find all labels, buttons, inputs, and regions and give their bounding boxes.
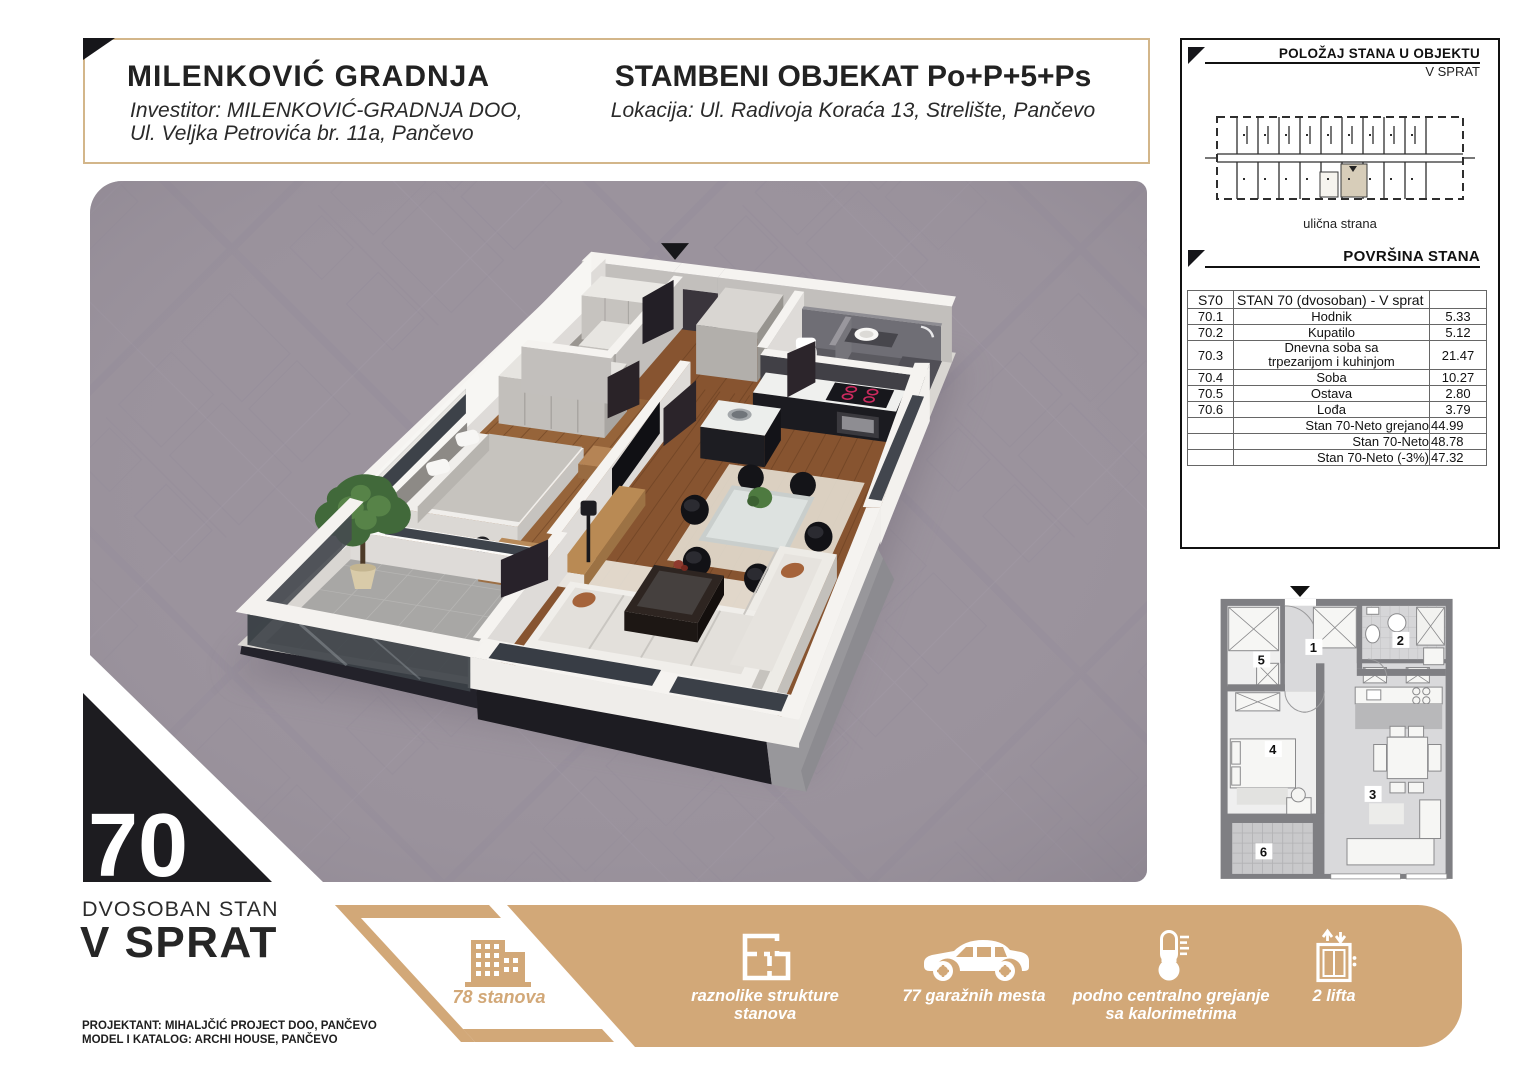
svg-text:2: 2 <box>1397 633 1404 648</box>
svg-text:77 garažnih mesta: 77 garažnih mesta <box>902 987 1045 1005</box>
svg-text:3: 3 <box>1369 787 1376 802</box>
svg-text:6: 6 <box>1260 844 1267 859</box>
svg-text:raznolike strukture: raznolike strukture <box>691 987 839 1005</box>
svg-text:4: 4 <box>1269 742 1277 757</box>
svg-text:podno centralno grejanje: podno centralno grejanje <box>1071 987 1269 1005</box>
svg-text:2 lifta: 2 lifta <box>1311 987 1355 1005</box>
svg-text:5: 5 <box>1258 653 1265 668</box>
svg-text:sa kalorimetrima: sa kalorimetrima <box>1105 1005 1236 1023</box>
svg-text:stanova: stanova <box>734 1005 796 1023</box>
svg-text:78 stanova: 78 stanova <box>452 987 545 1007</box>
svg-text:1: 1 <box>1310 640 1317 655</box>
